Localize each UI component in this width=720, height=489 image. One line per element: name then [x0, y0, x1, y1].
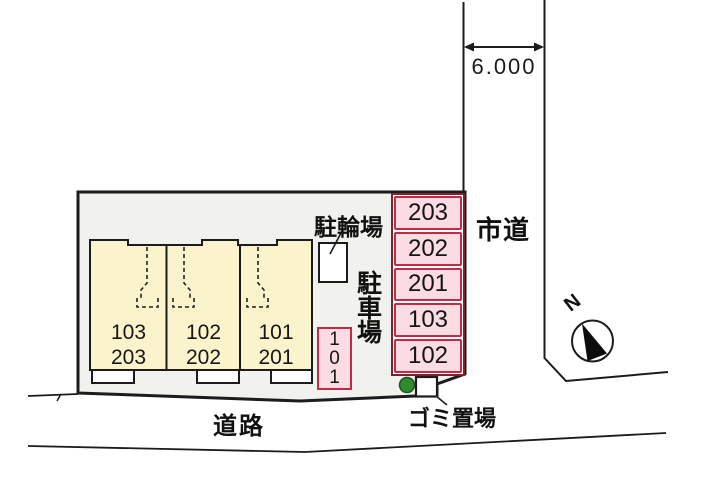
road-label: 道路 — [213, 406, 265, 441]
unit-label-103-203: 103 203 — [90, 320, 167, 370]
unit-number: 103 — [90, 320, 167, 345]
stall-number: 103 — [408, 306, 448, 334]
parking-area-label: 駐 車 場 — [357, 272, 382, 346]
bicycle-parking-label: 駐輪場 — [314, 208, 383, 242]
unit-label-101-201: 101 201 — [240, 320, 312, 370]
dimension-arrow — [464, 43, 544, 52]
unit-number: 203 — [90, 345, 167, 370]
unit-number: 101 — [240, 320, 312, 345]
tree-icon — [400, 378, 415, 393]
garbage-box — [416, 377, 437, 397]
stall-number: 102 — [408, 342, 448, 370]
road-line-left-segment — [28, 394, 78, 396]
parking-stall: 203 — [394, 196, 462, 230]
parking-area-char: 場 — [357, 321, 382, 346]
road-line-right-of-city-road — [545, 0, 669, 381]
stall-number: 202 — [408, 235, 448, 263]
stall-101-digit: 1 — [329, 330, 340, 349]
stall-101-digit: 1 — [329, 368, 340, 387]
stall-number: 203 — [408, 199, 448, 227]
city-road-label: 市道 — [476, 210, 530, 247]
dimension-label: 6.000 — [460, 54, 548, 80]
plan-drawing — [0, 0, 720, 489]
unit-label-102-202: 102 202 — [167, 320, 240, 370]
parking-stall-101: 1 0 1 — [317, 327, 352, 390]
parking-stall: 103 — [394, 303, 462, 337]
porch — [271, 370, 312, 383]
garbage-label: ゴミ置場 — [408, 401, 496, 433]
parking-area-char: 駐 — [357, 272, 382, 297]
parking-stall: 102 — [394, 339, 462, 373]
stall-number: 201 — [408, 270, 448, 298]
porch — [92, 370, 134, 383]
site-plan: 203 202 201 103 102 1 0 1 103 203 102 20… — [0, 0, 720, 489]
parking-area-char: 車 — [357, 297, 382, 322]
unit-number: 102 — [167, 320, 240, 345]
road-line-bottom — [28, 433, 666, 452]
parking-stall: 201 — [394, 268, 462, 302]
stall-101-digit: 0 — [329, 349, 340, 368]
porch — [197, 370, 239, 383]
unit-number: 201 — [240, 345, 312, 370]
parking-stall: 202 — [394, 232, 462, 266]
unit-number: 202 — [167, 345, 240, 370]
parking-stall-column: 203 202 201 103 102 — [391, 193, 465, 376]
north-arrow-icon — [572, 321, 613, 362]
